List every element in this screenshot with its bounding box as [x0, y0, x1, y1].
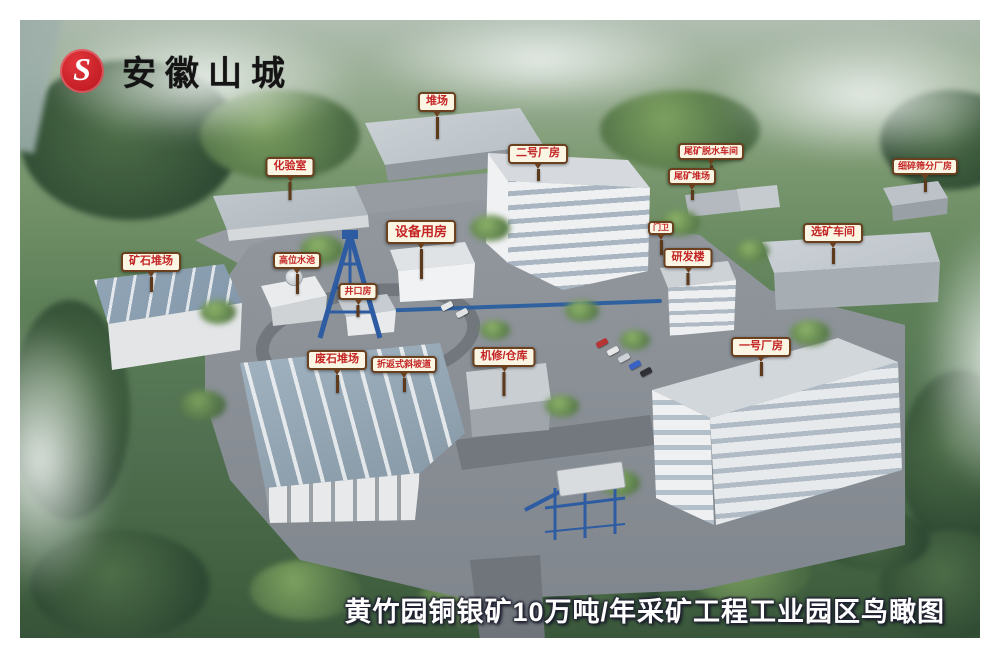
frame-border — [980, 0, 1000, 662]
sign-stake — [760, 362, 763, 376]
label-sign-jingkou-fang: 井口房 — [338, 283, 377, 317]
label-sign-jixiu-cangku: 机修/仓库 — [472, 347, 535, 396]
label-sign-feishi-duichang: 废石堆场 — [307, 350, 367, 393]
sign-text: 研发楼 — [672, 251, 705, 263]
logo-letter: S — [73, 53, 91, 85]
sign-board: 废石堆场 — [307, 350, 367, 370]
conveyor-structure — [520, 448, 655, 548]
logo-s-mark-icon: S — [60, 49, 104, 93]
label-sign-xuankuang-chejian: 选矿车间 — [803, 223, 863, 264]
sign-stake — [923, 180, 926, 192]
sign-board: 设备用房 — [386, 220, 456, 244]
company-name: 安徽山城 — [122, 46, 294, 95]
project-title: 黄竹园铜银矿10万吨/年采矿工程工业园区鸟瞰图 — [344, 590, 945, 629]
label-sign-xisui-shaifen: 细碎筛分厂房 — [892, 158, 958, 192]
sign-stake — [690, 190, 693, 200]
sign-text: 折返式斜坡道 — [377, 359, 431, 369]
frame-border — [0, 0, 20, 662]
sign-text: 高位水池 — [279, 255, 315, 265]
sign-text: 化验室 — [274, 160, 307, 172]
sign-stake — [503, 372, 506, 396]
sign-stake — [537, 169, 540, 181]
sign-stake — [356, 305, 359, 317]
sign-text: 选矿车间 — [811, 226, 855, 238]
sign-stake — [150, 277, 153, 292]
sign-board: 化验室 — [266, 157, 315, 177]
sign-text: 废石堆场 — [315, 353, 359, 365]
sign-text: 尾矿脱水车间 — [684, 146, 738, 156]
sign-text: 井口房 — [344, 286, 371, 296]
frame-border — [0, 0, 1000, 20]
sign-text: 门卫 — [653, 223, 669, 232]
label-sign-duichang: 堆场 — [418, 92, 456, 139]
sign-board: 尾矿脱水车间 — [678, 143, 744, 160]
frame-border — [0, 638, 1000, 662]
sign-stake — [660, 240, 663, 255]
sign-board: 尾矿堆场 — [668, 168, 716, 185]
company-logo: S 安徽山城 — [60, 46, 294, 95]
sign-stake — [402, 378, 405, 392]
sign-board: 高位水池 — [273, 252, 321, 269]
sign-board: 一号厂房 — [731, 337, 791, 357]
label-sign-yanfa-lou: 研发楼 — [664, 248, 713, 285]
sign-stake — [289, 182, 292, 200]
sign-text: 堆场 — [426, 95, 448, 107]
sign-text: 矿石堆场 — [129, 255, 173, 267]
sign-board: 机修/仓库 — [472, 347, 535, 367]
sign-stake — [436, 117, 439, 139]
sign-board: 选矿车间 — [803, 223, 863, 243]
sign-text: 设备用房 — [395, 224, 447, 239]
label-sign-shebei-yongfang: 设备用房 — [386, 220, 456, 279]
sign-stake — [832, 248, 835, 264]
sign-board: 矿石堆场 — [121, 252, 181, 272]
sign-stake — [336, 375, 339, 393]
sign-text: 机修/仓库 — [480, 350, 527, 362]
sign-text: 尾矿堆场 — [674, 171, 710, 181]
sign-stake — [687, 273, 690, 285]
sign-board: 二号厂房 — [508, 144, 568, 164]
sign-text: 细碎筛分厂房 — [898, 161, 952, 171]
sign-board: 研发楼 — [664, 248, 713, 268]
label-sign-gaowei-shuichi: 高位水池 — [273, 252, 321, 294]
sign-text: 一号厂房 — [739, 340, 783, 352]
sign-stake — [419, 249, 422, 279]
vignette — [0, 0, 1000, 662]
sign-board: 门卫 — [648, 221, 674, 235]
label-sign-huayanshi: 化验室 — [266, 157, 315, 200]
sign-board: 井口房 — [338, 283, 377, 300]
label-sign-xiepodao: 折返式斜坡道 — [371, 356, 437, 392]
label-sign-kuangshi-duichang: 矿石堆场 — [121, 252, 181, 292]
label-sign-weikuang-duichang: 尾矿堆场 — [668, 168, 716, 200]
sign-board: 折返式斜坡道 — [371, 356, 437, 373]
label-sign-yihao-changfang: 一号厂房 — [731, 337, 791, 376]
sign-stake — [295, 274, 298, 294]
sign-text: 二号厂房 — [516, 147, 560, 159]
sign-board: 堆场 — [418, 92, 456, 112]
birdseye-rendering: 堆场 化验室 二号厂房 尾矿脱水车间 尾矿堆场 细碎筛分厂房 选矿车间 设备用房… — [0, 0, 1000, 662]
sign-board: 细碎筛分厂房 — [892, 158, 958, 175]
label-sign-erhao-changfang: 二号厂房 — [508, 144, 568, 181]
